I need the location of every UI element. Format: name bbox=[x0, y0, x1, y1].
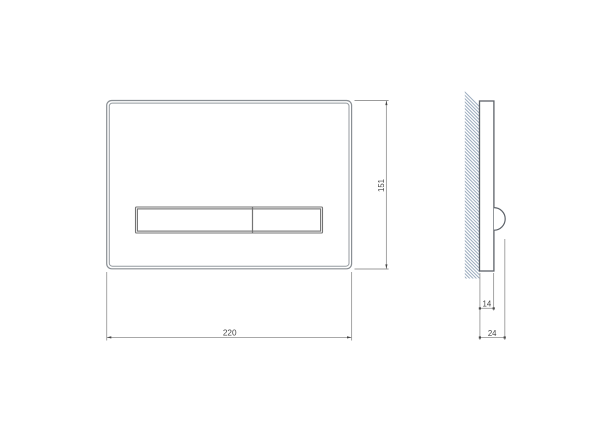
svg-text:151: 151 bbox=[377, 179, 386, 192]
svg-text:14: 14 bbox=[483, 300, 492, 309]
svg-text:24: 24 bbox=[488, 329, 497, 338]
svg-text:220: 220 bbox=[223, 329, 237, 338]
